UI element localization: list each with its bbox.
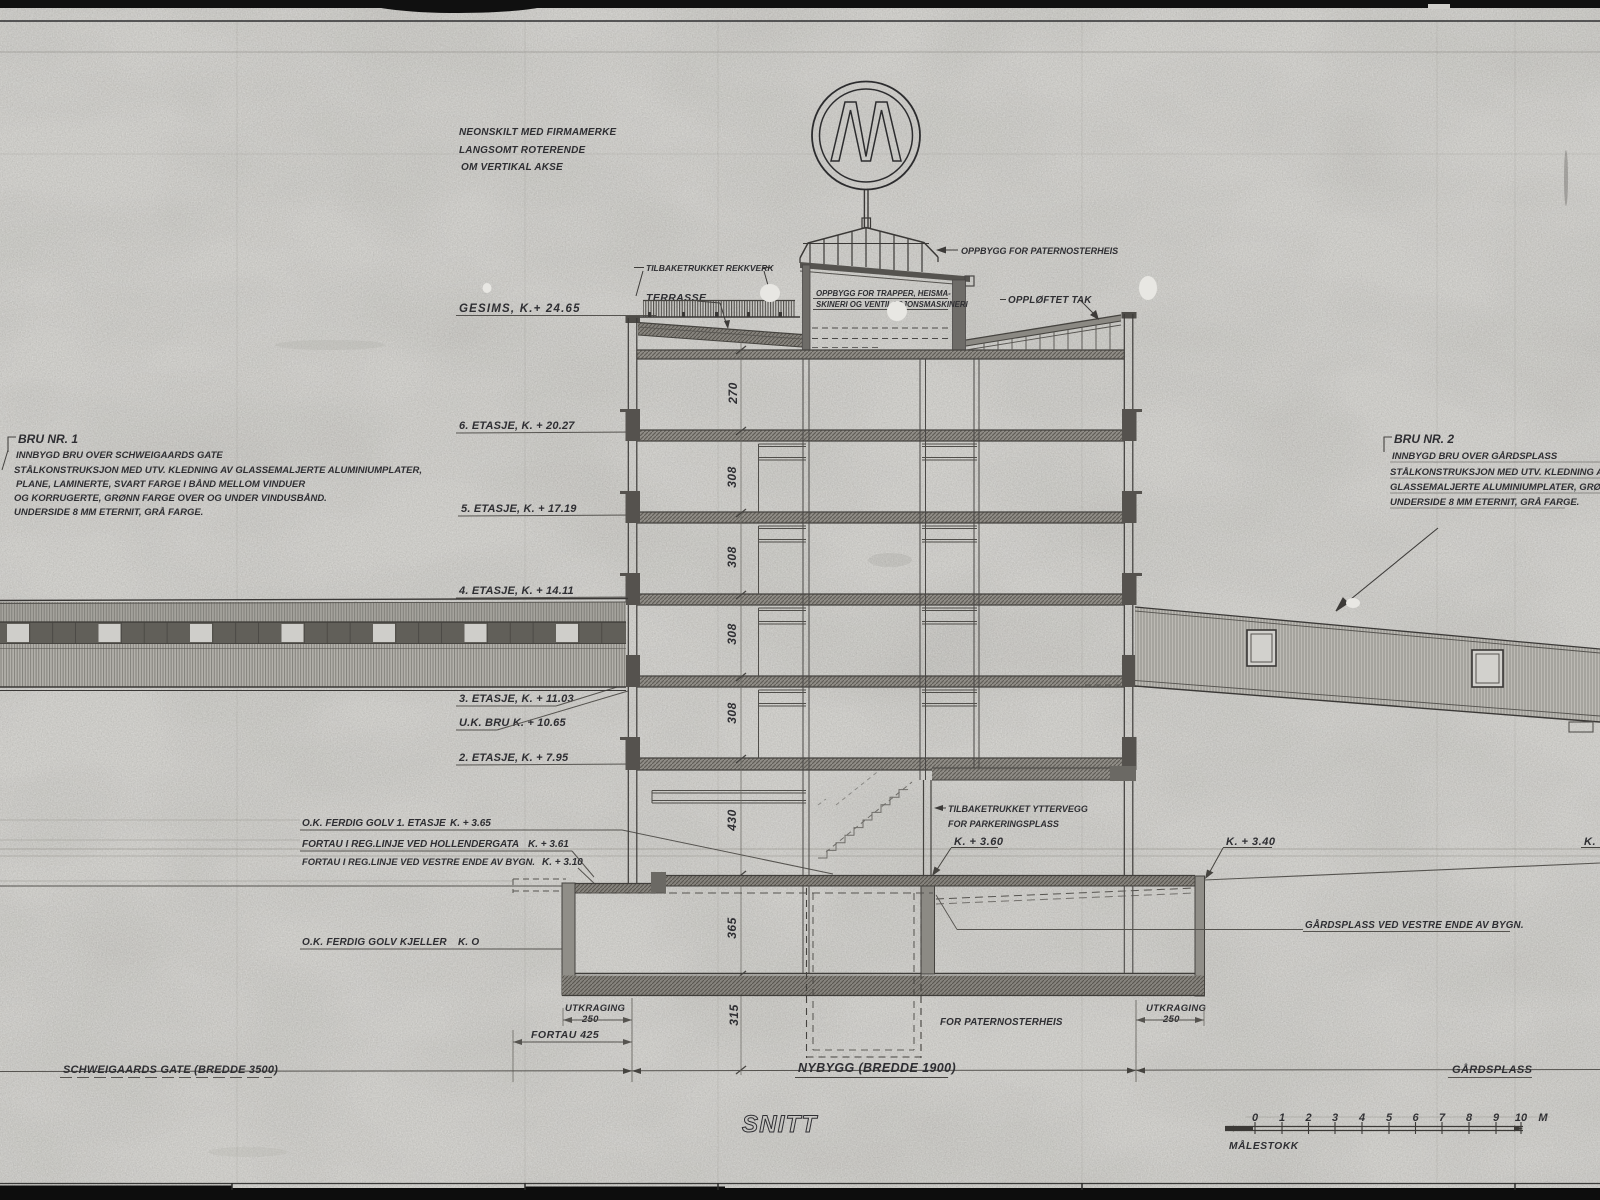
svg-text:OM VERTIKAL AKSE: OM VERTIKAL AKSE bbox=[461, 162, 563, 173]
svg-text:6. ETASJE, K. + 20.27: 6. ETASJE, K. + 20.27 bbox=[459, 420, 575, 432]
svg-text:STÅLKONSTRUKSJON MED UTV. KLED: STÅLKONSTRUKSJON MED UTV. KLEDNING AV S bbox=[1390, 467, 1600, 478]
svg-text:FOR PARKERINGSPLASS: FOR PARKERINGSPLASS bbox=[948, 819, 1059, 829]
svg-text:315: 315 bbox=[727, 1004, 741, 1026]
svg-text:TILBAKETRUKKET YTTERVEGG: TILBAKETRUKKET YTTERVEGG bbox=[948, 804, 1088, 814]
svg-text:OPPLØFTET TAK: OPPLØFTET TAK bbox=[1008, 295, 1092, 306]
svg-text:K. +: K. + bbox=[1584, 836, 1600, 848]
svg-text:270: 270 bbox=[726, 382, 740, 405]
svg-text:4. ETASJE, K. + 14.11: 4. ETASJE, K. + 14.11 bbox=[458, 585, 574, 597]
svg-text:BRU NR. 2: BRU NR. 2 bbox=[1394, 432, 1454, 446]
svg-text:UNDERSIDE 8 MM ETERNIT, GRÅ FA: UNDERSIDE 8 MM ETERNIT, GRÅ FARGE. bbox=[14, 507, 203, 518]
svg-text:GESIMS, K.+ 24.65: GESIMS, K.+ 24.65 bbox=[459, 303, 581, 315]
svg-text:GÅRDSPLASS VED VESTRE ENDE: GÅRDSPLASS VED VESTRE ENDE AV BYGN. bbox=[1305, 920, 1524, 931]
svg-text:430: 430 bbox=[725, 809, 739, 832]
svg-text:U.K. BRU K. + 10.65: U.K. BRU K. + 10.65 bbox=[459, 717, 566, 729]
svg-text:O.K. FERDIG GOLV 1. ETASJE: O.K. FERDIG GOLV 1. ETASJE bbox=[302, 818, 446, 829]
svg-text:GÅRDSPLASS: GÅRDSPLASS bbox=[1452, 1063, 1533, 1076]
svg-text:MÅLESTOKK: MÅLESTOKK bbox=[1229, 1139, 1299, 1152]
svg-text:OG KORRUGERTE, GRØNN FARGE OVE: OG KORRUGERTE, GRØNN FARGE OVER OG UNDER… bbox=[14, 493, 327, 504]
svg-text:INNBYGD BRU OVER SCHWEIGAARDS: INNBYGD BRU OVER SCHWEIGAARDS GATE bbox=[16, 450, 223, 461]
svg-text:M: M bbox=[1538, 1112, 1548, 1124]
svg-text:STÅLKONSTRUKSJON MED UTV. KLED: STÅLKONSTRUKSJON MED UTV. KLEDNING AV GL… bbox=[14, 465, 422, 476]
svg-text:NEONSKILT MED FIRMAMERKE: NEONSKILT MED FIRMAMERKE bbox=[459, 127, 617, 138]
svg-text:BRU NR. 1: BRU NR. 1 bbox=[18, 432, 78, 446]
svg-text:308: 308 bbox=[725, 466, 739, 488]
svg-text:UNDERSIDE 8 MM ETERNIT, GRÅ FA: UNDERSIDE 8 MM ETERNIT, GRÅ FARGE. bbox=[1390, 497, 1579, 508]
svg-text:INNBYGD BRU OVER GÅRDSPLASS: INNBYGD BRU OVER GÅRDSPLASS bbox=[1392, 451, 1558, 462]
svg-text:K. + 3.40: K. + 3.40 bbox=[1226, 836, 1276, 848]
svg-text:LANGSOMT ROTERENDE: LANGSOMT ROTERENDE bbox=[459, 145, 586, 156]
svg-text:UTKRAGING: UTKRAGING bbox=[565, 1003, 626, 1014]
svg-text:TILBAKETRUKKET REKKVERK: TILBAKETRUKKET REKKVERK bbox=[646, 263, 774, 273]
svg-text:K. O: K. O bbox=[458, 937, 479, 948]
svg-text:K. + 3.10: K. + 3.10 bbox=[542, 857, 583, 868]
svg-text:250: 250 bbox=[1162, 1014, 1180, 1025]
svg-text:FORTAU I REG.LINJE VED VESTRE: FORTAU I REG.LINJE VED VESTRE ENDE AV BY… bbox=[302, 856, 535, 867]
svg-text:2. ETASJE, K. + 7.95: 2. ETASJE, K. + 7.95 bbox=[458, 752, 569, 764]
svg-text:K. + 3.65: K. + 3.65 bbox=[450, 818, 491, 829]
svg-text:FORTAU I REG.LINJE VED HOLLEND: FORTAU I REG.LINJE VED HOLLENDERGATA bbox=[302, 839, 519, 850]
svg-text:3. ETASJE, K. + 11.03: 3. ETASJE, K. + 11.03 bbox=[459, 693, 574, 705]
svg-text:308: 308 bbox=[725, 702, 739, 724]
svg-text:K. + 3.61: K. + 3.61 bbox=[528, 839, 569, 850]
svg-text:OPPBYGG FOR PATERNOSTERHEIS: OPPBYGG FOR PATERNOSTERHEIS bbox=[961, 246, 1118, 256]
svg-text:308: 308 bbox=[725, 623, 739, 645]
svg-text:365: 365 bbox=[725, 917, 739, 939]
svg-text:UTKRAGING: UTKRAGING bbox=[1146, 1003, 1207, 1014]
svg-text:5. ETASJE, K. + 17.19: 5. ETASJE, K. + 17.19 bbox=[461, 503, 577, 515]
svg-text:NYBYGG (BREDDE 1900): NYBYGG (BREDDE 1900) bbox=[798, 1061, 956, 1075]
svg-text:GLASSEMALJERTE ALUMINIUMPLATER: GLASSEMALJERTE ALUMINIUMPLATER, GRØNN F bbox=[1390, 482, 1600, 493]
svg-text:OPPBYGG FOR TRAPPER, HEISMA-: OPPBYGG FOR TRAPPER, HEISMA- bbox=[816, 289, 951, 298]
svg-text:FORTAU 425: FORTAU 425 bbox=[531, 1029, 599, 1041]
svg-text:SCHWEIGAARDS GATE (BREDDE 3: SCHWEIGAARDS GATE (BREDDE 3500) bbox=[63, 1064, 278, 1076]
svg-text:FOR PATERNOSTERHEIS: FOR PATERNOSTERHEIS bbox=[940, 1017, 1063, 1028]
svg-text:K. + 3.60: K. + 3.60 bbox=[954, 836, 1004, 848]
svg-text:PLANE, LAMINERTE, SVART FARGE: PLANE, LAMINERTE, SVART FARGE I BÅND MEL… bbox=[16, 479, 305, 490]
svg-text:308: 308 bbox=[725, 546, 739, 568]
svg-text:250: 250 bbox=[581, 1014, 599, 1025]
svg-text:SNITT: SNITT bbox=[742, 1111, 818, 1138]
svg-text:O.K. FERDIG GOLV KJELLER: O.K. FERDIG GOLV KJELLER bbox=[302, 937, 447, 948]
